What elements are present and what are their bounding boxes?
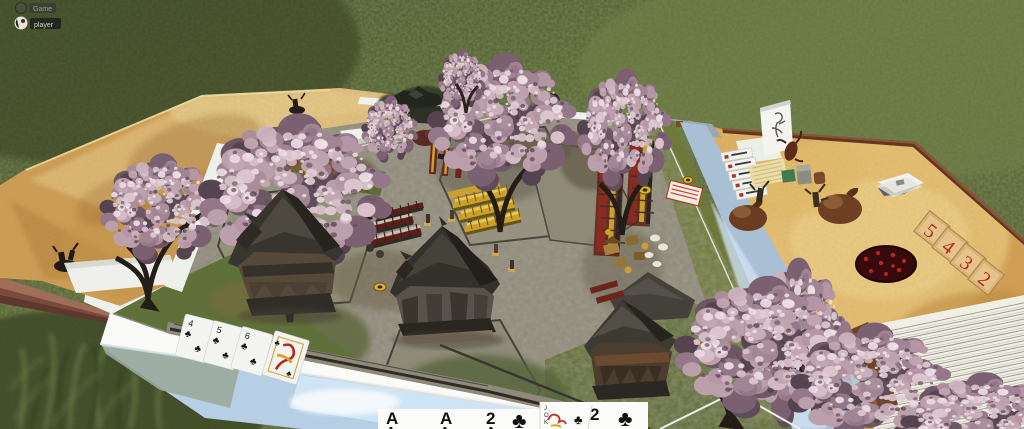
svg-text:K: K: [544, 420, 548, 426]
svg-text:♣: ♣: [441, 423, 449, 429]
svg-text:♣: ♣: [487, 423, 495, 429]
svg-text:♣: ♣: [618, 406, 632, 429]
svg-text:J: J: [544, 406, 547, 412]
svg-text:Game: Game: [33, 6, 52, 13]
svg-text:player: player: [34, 22, 54, 29]
svg-text:♣: ♣: [574, 412, 583, 427]
svg-text:♣: ♣: [387, 423, 395, 429]
svg-text:♣: ♣: [512, 408, 526, 429]
